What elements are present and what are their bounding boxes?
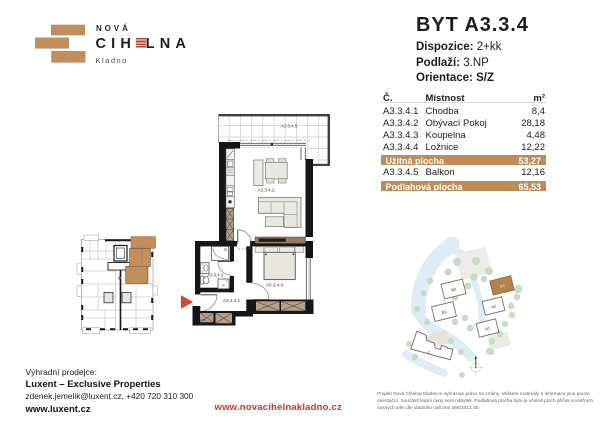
svg-text:A3.3.4.4: A3.3.4.4 [266, 283, 284, 288]
svg-text:A3.3.4.2: A3.3.4.2 [257, 188, 275, 193]
svg-text:C: C [427, 351, 430, 356]
svg-text:A3.3.4.1: A3.3.4.1 [223, 298, 241, 303]
svg-text:1:50: 1:50 [200, 318, 206, 322]
svg-text:A3.3.4.5: A3.3.4.5 [280, 124, 298, 129]
svg-text:A3.3.4.3: A3.3.4.3 [207, 273, 223, 278]
